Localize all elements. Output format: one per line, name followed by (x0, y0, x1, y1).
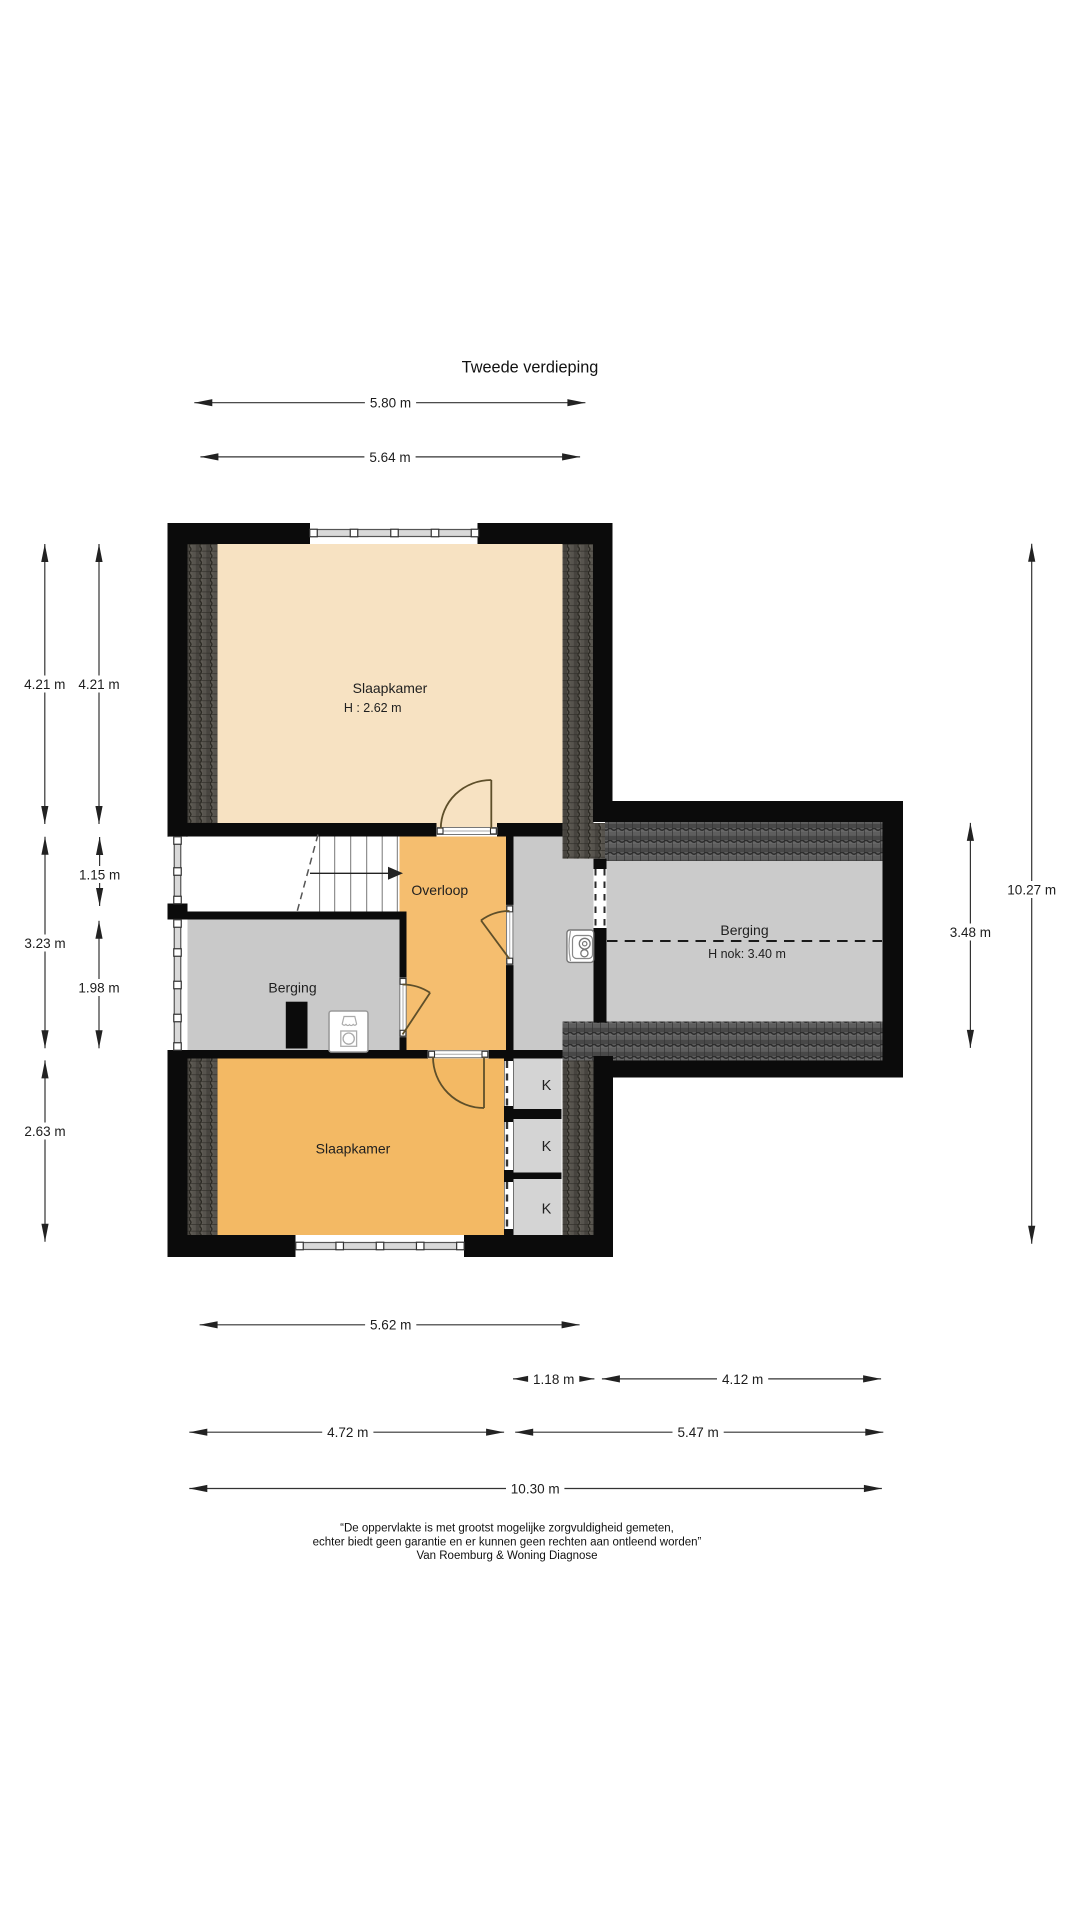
svg-text:5.62 m: 5.62 m (370, 1318, 411, 1333)
svg-text:10.30 m: 10.30 m (511, 1481, 560, 1496)
svg-text:2.63 m: 2.63 m (24, 1124, 65, 1139)
svg-text:Overloop: Overloop (411, 882, 468, 898)
svg-text:Berging: Berging (720, 922, 768, 938)
svg-text:echter biedt geen garantie en: echter biedt geen garantie en er kunnen … (313, 1537, 702, 1549)
svg-text:Slaapkamer: Slaapkamer (316, 1141, 391, 1157)
svg-text:5.47 m: 5.47 m (677, 1425, 718, 1440)
svg-text:4.12 m: 4.12 m (722, 1372, 763, 1387)
svg-text:3.48 m: 3.48 m (950, 925, 991, 940)
svg-text:H nok: 3.40 m: H nok: 3.40 m (708, 947, 786, 961)
svg-text:5.80 m: 5.80 m (370, 396, 411, 411)
svg-text:Tweede verdieping: Tweede verdieping (462, 359, 599, 377)
svg-text:1.98 m: 1.98 m (78, 980, 119, 995)
svg-text:1.18 m: 1.18 m (533, 1372, 574, 1387)
svg-text:Van Roemburg & Woning Diagnose: Van Roemburg & Woning Diagnose (416, 1550, 597, 1562)
svg-text:4.21 m: 4.21 m (78, 677, 119, 692)
svg-text:Slaapkamer: Slaapkamer (353, 680, 428, 696)
svg-text:10.27 m: 10.27 m (1007, 882, 1056, 897)
svg-text:Berging: Berging (268, 979, 316, 995)
svg-text:5.64 m: 5.64 m (369, 450, 410, 465)
svg-text:3.23 m: 3.23 m (24, 936, 65, 951)
svg-text:K: K (542, 1139, 552, 1155)
svg-text:1.15 m: 1.15 m (79, 867, 120, 882)
svg-text:4.21 m: 4.21 m (24, 677, 65, 692)
svg-text:K: K (542, 1078, 552, 1094)
svg-text:H : 2.62 m: H : 2.62 m (344, 701, 402, 715)
svg-text:“De oppervlakte is met grootst: “De oppervlakte is met grootst mogelijke… (340, 1523, 674, 1535)
svg-text:4.72 m: 4.72 m (327, 1425, 368, 1440)
svg-text:K: K (542, 1201, 552, 1217)
